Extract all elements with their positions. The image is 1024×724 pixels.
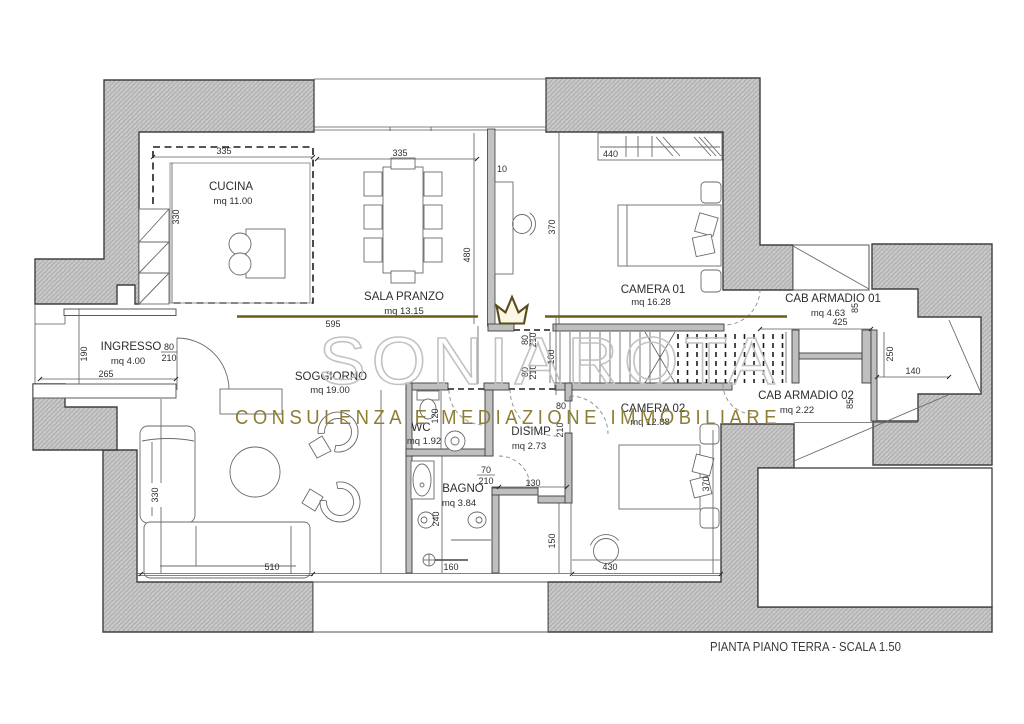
svg-text:mq 16.28: mq 16.28 — [631, 297, 671, 308]
svg-text:370: 370 — [547, 219, 557, 234]
svg-text:130: 130 — [525, 478, 540, 488]
svg-text:430: 430 — [602, 562, 617, 572]
svg-text:595: 595 — [325, 319, 340, 329]
svg-text:CAB ARMADIO 01: CAB ARMADIO 01 — [785, 293, 881, 305]
svg-text:mq 2.73: mq 2.73 — [512, 441, 546, 452]
svg-text:335: 335 — [392, 148, 407, 158]
svg-text:425: 425 — [832, 317, 847, 327]
svg-text:mq 1.92: mq 1.92 — [407, 436, 441, 447]
svg-text:70: 70 — [481, 465, 491, 475]
svg-text:PIANTA PIANO TERRA - SCALA 1.5: PIANTA PIANO TERRA - SCALA 1.50 — [710, 640, 901, 654]
svg-text:CONSULENZA E MEDIAZIONE IMMOBI: CONSULENZA E MEDIAZIONE IMMOBILIARE — [235, 406, 781, 429]
svg-text:140: 140 — [905, 366, 920, 376]
svg-text:480: 480 — [462, 247, 472, 262]
svg-text:210: 210 — [161, 353, 176, 363]
svg-text:mq 4.00: mq 4.00 — [111, 356, 145, 367]
svg-text:160: 160 — [443, 562, 458, 572]
svg-text:SONIAROTA: SONIAROTA — [319, 324, 781, 399]
svg-text:SALA PRANZO: SALA PRANZO — [364, 291, 444, 303]
svg-text:330: 330 — [171, 209, 181, 224]
svg-text:INGRESSO: INGRESSO — [101, 341, 162, 353]
svg-text:85: 85 — [845, 399, 855, 409]
svg-text:mq 3.84: mq 3.84 — [442, 498, 476, 509]
svg-text:mq 11.00: mq 11.00 — [214, 196, 253, 207]
svg-text:265: 265 — [98, 369, 113, 379]
svg-text:150: 150 — [547, 533, 557, 548]
svg-text:CUCINA: CUCINA — [209, 181, 253, 193]
svg-text:80: 80 — [164, 342, 174, 352]
svg-text:190: 190 — [79, 346, 89, 361]
svg-text:240: 240 — [431, 511, 441, 526]
svg-text:210: 210 — [478, 476, 493, 486]
svg-text:85: 85 — [850, 303, 860, 313]
svg-text:335: 335 — [216, 146, 231, 156]
svg-text:370: 370 — [701, 476, 711, 491]
svg-text:mq 2.22: mq 2.22 — [780, 405, 814, 416]
svg-text:250: 250 — [885, 346, 895, 361]
svg-text:440: 440 — [603, 149, 618, 159]
svg-text:330: 330 — [150, 487, 160, 502]
svg-text:10: 10 — [497, 164, 507, 174]
svg-text:CAMERA 01: CAMERA 01 — [621, 284, 686, 296]
svg-text:510: 510 — [264, 562, 279, 572]
